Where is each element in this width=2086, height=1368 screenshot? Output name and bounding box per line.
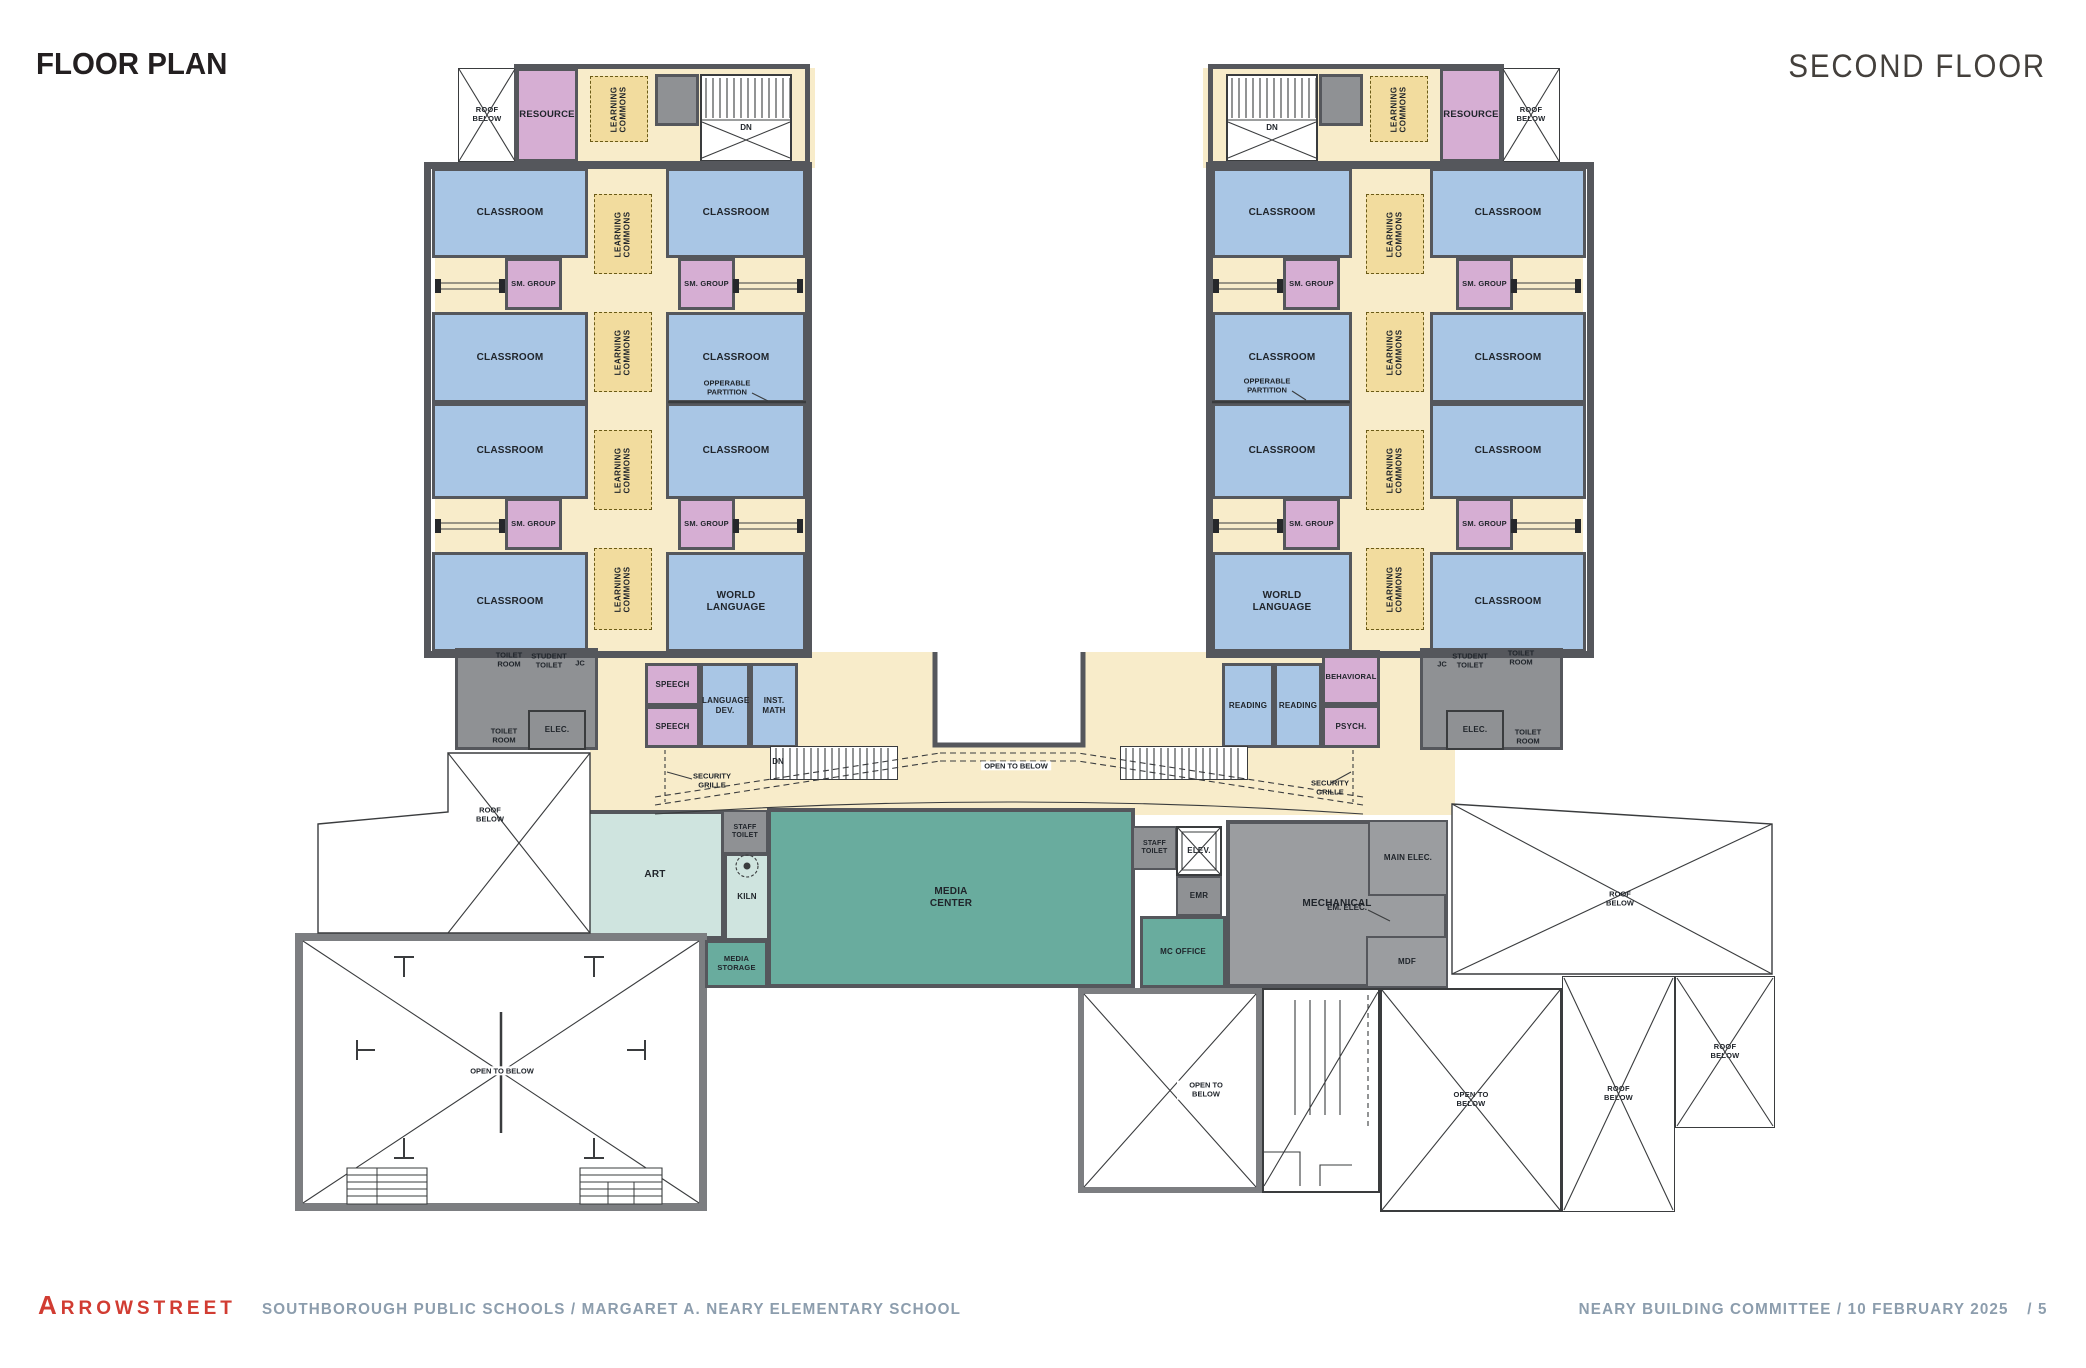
room-language-dev: LANGUAGE DEV.: [700, 663, 750, 748]
plan-annotation: JC: [575, 658, 585, 667]
room-staff-toilet: STAFF TOILET: [1132, 826, 1177, 870]
room-label: ROOF BELOW: [466, 106, 508, 124]
plan-annotation: OPEN TO BELOW: [467, 1066, 537, 1075]
plan-annotation: DN: [740, 123, 752, 133]
open-to-below-box: OPEN TO BELOW: [1380, 988, 1562, 1212]
room-mc-office: MC OFFICE: [1140, 916, 1226, 988]
plan-annotation: OPPERABLE PARTITION: [1227, 377, 1307, 396]
plan-annotation: OPEN TO BELOW: [1177, 1081, 1235, 1100]
plan-annotation: OPEN TO BELOW: [981, 761, 1051, 770]
roof-below-trapezoid: [318, 753, 590, 933]
room-behavioral: BEHAVIORAL: [1322, 650, 1380, 705]
room-label: KILN: [737, 892, 756, 901]
room-label: MDF: [1398, 957, 1416, 966]
room-label: SPEECH: [655, 680, 689, 689]
plan-annotation: ROOF BELOW: [1598, 890, 1642, 909]
plan-annotation: STUDENT TOILET: [522, 652, 576, 671]
room-reading: READING: [1274, 663, 1322, 748]
room-label: MAIN ELEC.: [1384, 853, 1432, 862]
room-label: ART: [644, 869, 665, 881]
plan-annotation: OPPERABLE PARTITION: [687, 379, 767, 398]
room-label: MEDIA STORAGE: [709, 955, 765, 973]
room-media-center: MEDIA CENTER: [767, 808, 1135, 988]
plan-annotation: ROOF BELOW: [468, 806, 512, 825]
room-staff-toilet: STAFF TOILET: [722, 810, 768, 854]
wing-outline: [1208, 64, 1504, 166]
floor-plan: ROOF BELOWRESOURCELEARNING COMMONSROOF B…: [0, 0, 2086, 1368]
roof-trap-diag: [448, 753, 590, 933]
room-label: PSYCH.: [1336, 722, 1367, 731]
plan-annotation: TOILET ROOM: [1497, 649, 1545, 668]
footer-page-number: / 5: [2028, 1301, 2048, 1318]
plan-annotation: TOILET ROOM: [1504, 728, 1552, 747]
room-inst-math: INST. MATH: [750, 663, 798, 748]
room-label: ELEC.: [545, 725, 570, 734]
footer-committee-date: NEARY BUILDING COMMITTEE / 10 FEBRUARY 2…: [1579, 1301, 2009, 1318]
room-elevator: ELEV.: [1176, 826, 1222, 876]
room-label: ROOF BELOW: [1598, 1085, 1640, 1103]
wing-outline: [514, 64, 810, 166]
room-psych: PSYCH.: [1322, 705, 1380, 748]
room-media-storage: MEDIA STORAGE: [705, 940, 768, 988]
wing-outline: [424, 162, 812, 658]
roof-below-box: ROOF BELOW: [1562, 976, 1675, 1212]
room-main-elec: MAIN ELEC.: [1368, 820, 1448, 896]
plan-annotation: DN: [772, 757, 784, 767]
footer-district: SOUTHBOROUGH PUBLIC SCHOOLS: [262, 1301, 566, 1318]
plan-annotation: SECURITY GRILLE: [1299, 779, 1361, 798]
roof-below-box: ROOF BELOW: [1675, 976, 1775, 1128]
room-label: READING: [1225, 701, 1271, 710]
room-speech: SPEECH: [645, 663, 700, 706]
plan-annotation: SECURITY GRILLE: [681, 772, 743, 791]
band-gap-walls: [935, 652, 1083, 745]
footer-school: MARGARET A. NEARY ELEMENTARY SCHOOL: [582, 1301, 961, 1318]
room-label: ELEV.: [1187, 846, 1210, 855]
footer: ARROWSTREET SOUTHBOROUGH PUBLIC SCHOOLS …: [38, 1290, 2048, 1320]
roof-below-box: ROOF BELOW: [458, 68, 516, 162]
room-label: BEHAVIORAL: [1325, 673, 1377, 682]
plan-annotation: STUDENT TOILET: [1443, 652, 1497, 671]
roof-below-box: ROOF BELOW: [1502, 68, 1560, 162]
room-label: EMR: [1190, 891, 1208, 900]
room-label: ROOF BELOW: [1510, 106, 1552, 124]
room-label: STAFF TOILET: [727, 824, 763, 841]
stair: [770, 746, 898, 780]
room-label: MC OFFICE: [1160, 947, 1206, 956]
footer-project: SOUTHBOROUGH PUBLIC SCHOOLS / MARGARET A…: [262, 1301, 961, 1319]
room-label: MEDIA CENTER: [921, 886, 981, 910]
room-art: ART: [585, 810, 725, 940]
room-label: SPEECH: [655, 722, 689, 731]
plan-annotation: DN: [1266, 123, 1278, 133]
room-label: ROOF BELOW: [1704, 1043, 1746, 1061]
footer-meta: NEARY BUILDING COMMITTEE / 10 FEBRUARY 2…: [1579, 1301, 2048, 1319]
footer-divider: /: [571, 1301, 576, 1318]
corridor-band: [935, 745, 1083, 815]
room-mdf: MDF: [1366, 936, 1448, 988]
room-label: ELEC.: [1463, 725, 1488, 734]
plan-annotation: EM. ELEC.: [1327, 903, 1367, 913]
slide: FLOOR PLAN SECOND FLOOR: [0, 0, 2086, 1368]
room-label: OPEN TO BELOW: [1446, 1091, 1496, 1109]
room-label: INST. MATH: [754, 696, 794, 715]
stair: [1120, 746, 1248, 780]
room-emr: EMR: [1176, 876, 1222, 916]
room-label: READING: [1277, 701, 1319, 710]
room-reading: READING: [1222, 663, 1274, 748]
room-label: STAFF TOILET: [1137, 840, 1173, 857]
room-kiln: KILN: [725, 854, 769, 940]
room-elec: ELEC.: [1446, 710, 1504, 750]
stage-box: [1262, 988, 1380, 1193]
firm-logo: ARROWSTREET: [38, 1290, 236, 1321]
plan-annotation: TOILET ROOM: [480, 727, 528, 746]
room-speech: SPEECH: [645, 706, 700, 748]
room-label: LANGUAGE DEV.: [702, 696, 748, 715]
room-elec: ELEC.: [528, 710, 586, 750]
wing-outline: [1206, 162, 1594, 658]
